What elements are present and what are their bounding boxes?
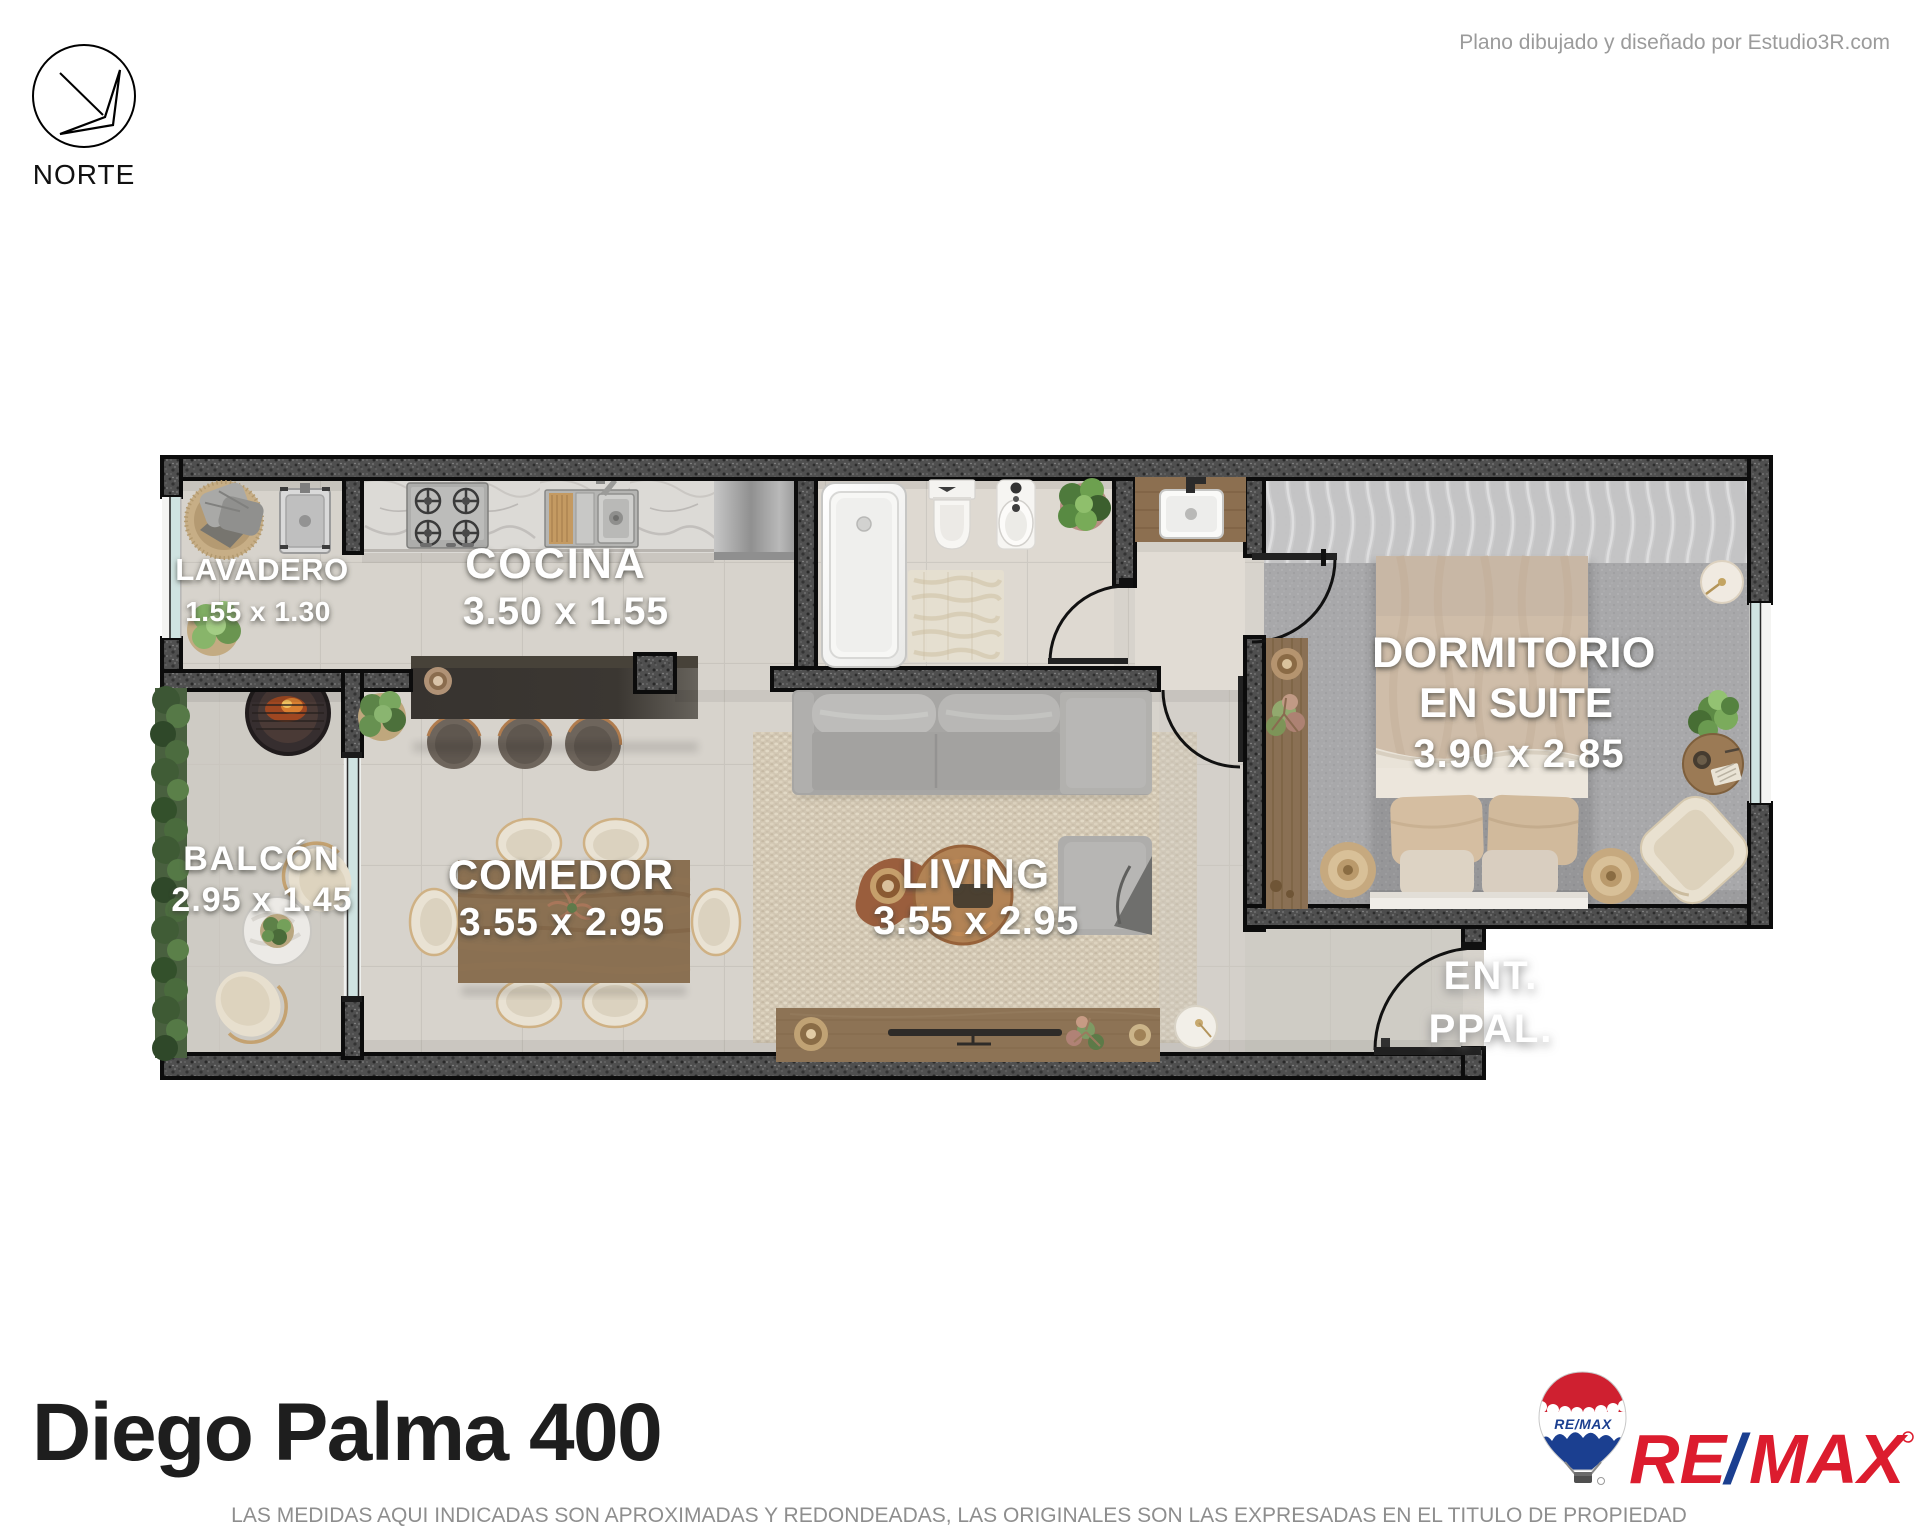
svg-text:NORTE: NORTE (33, 159, 136, 190)
svg-text:MAX: MAX (1749, 1420, 1909, 1498)
svg-text:/: / (1722, 1420, 1751, 1498)
svg-text:Diego Palma 400: Diego Palma 400 (32, 1387, 661, 1478)
svg-text:PPAL.: PPAL. (1429, 1007, 1554, 1051)
svg-text:COMEDOR: COMEDOR (448, 851, 674, 898)
svg-text:3.50 x 1.55: 3.50 x 1.55 (463, 590, 669, 633)
svg-text:LIVING: LIVING (901, 850, 1050, 897)
svg-text:ENT.: ENT. (1444, 954, 1539, 998)
svg-text:RE: RE (1629, 1420, 1729, 1498)
svg-text:3.90 x 2.85: 3.90 x 2.85 (1413, 732, 1624, 776)
svg-text:Plano dibujado y diseñado por: Plano dibujado y diseñado por Estudio3R.… (1459, 31, 1890, 54)
svg-text:LAVADERO: LAVADERO (175, 552, 348, 587)
svg-text:BALCÓN: BALCÓN (183, 840, 340, 878)
svg-text:1.55 x 1.30: 1.55 x 1.30 (185, 596, 331, 627)
svg-text:2.95 x 1.45: 2.95 x 1.45 (171, 881, 352, 919)
svg-text:3.55 x 2.95: 3.55 x 2.95 (873, 899, 1079, 943)
svg-text:3.55 x 2.95: 3.55 x 2.95 (459, 901, 665, 944)
svg-text:DORMITORIO: DORMITORIO (1372, 629, 1656, 677)
svg-text:EN SUITE: EN SUITE (1419, 679, 1613, 726)
svg-text:COCINA: COCINA (465, 540, 647, 588)
svg-text:LAS MEDIDAS AQUI INDICADAS SON: LAS MEDIDAS AQUI INDICADAS SON APROXIMAD… (231, 1504, 1687, 1527)
svg-text:RE/MAX: RE/MAX (1554, 1416, 1613, 1432)
